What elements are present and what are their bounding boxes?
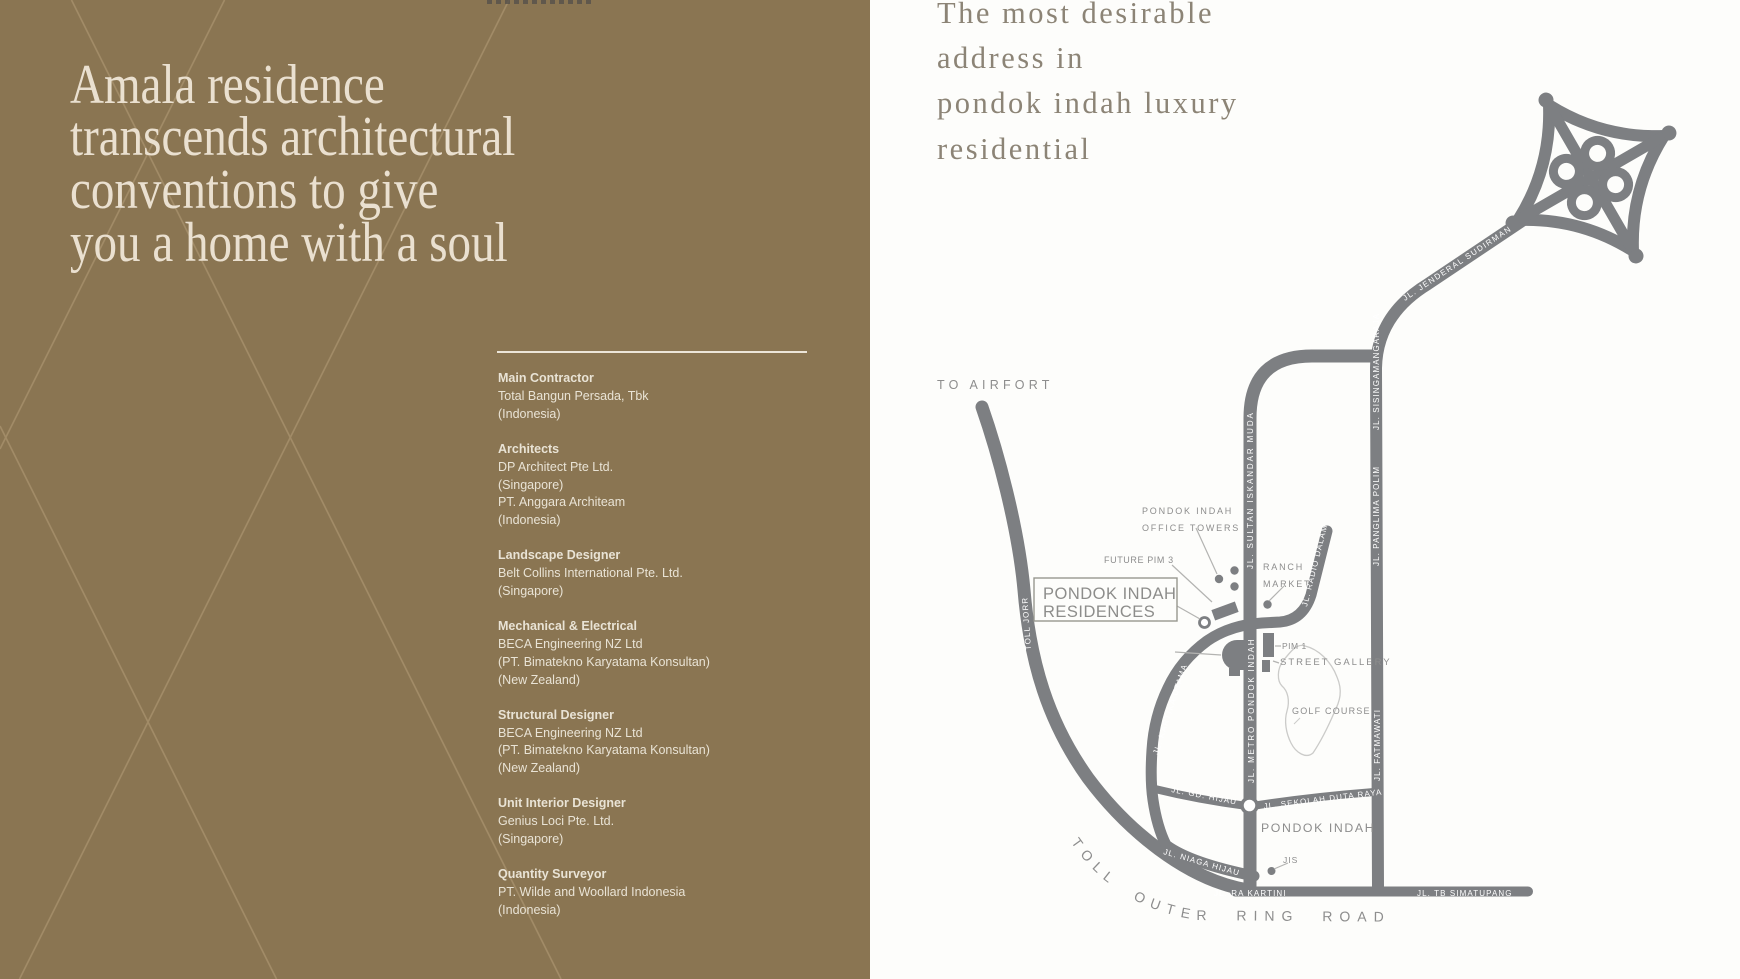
svg-text:JL. SEKOLAH DUTA RAYA: JL. SEKOLAH DUTA RAYA: [1263, 787, 1383, 811]
svg-text:RANCH: RANCH: [1263, 562, 1304, 572]
svg-text:FUTURE PIM 3: FUTURE PIM 3: [1104, 555, 1174, 565]
svg-text:PONDOK INDAH: PONDOK INDAH: [1142, 506, 1233, 516]
svg-text:JL. RA KARTINI: JL. RA KARTINI: [1214, 889, 1287, 898]
svg-text:JL. TB SIMATUPANG: JL. TB SIMATUPANG: [1417, 889, 1513, 898]
svg-text:TO AIRFORT: TO AIRFORT: [937, 378, 1054, 392]
svg-text:JL. SULTAN ISKANDAR MUDA: JL. SULTAN ISKANDAR MUDA: [1246, 411, 1255, 569]
svg-text:JL. SISINGAMANGARAJA: JL. SISINGAMANGARAJA: [1372, 313, 1381, 430]
svg-text:JL. FATMAWATI: JL. FATMAWATI: [1373, 709, 1382, 781]
svg-text:JL. JENDERAL SUDIRMAN: JL. JENDERAL SUDIRMAN: [1401, 224, 1513, 303]
svg-text:JL. METRO PONDOK INDAH: JL. METRO PONDOK INDAH: [1247, 638, 1256, 783]
svg-text:PONDOK INDAH: PONDOK INDAH: [1043, 585, 1176, 603]
svg-text:GOLF COURSE: GOLF COURSE: [1292, 706, 1371, 716]
svg-text:RESIDENCES: RESIDENCES: [1043, 603, 1155, 621]
svg-text:PONDOK INDAH: PONDOK INDAH: [1261, 821, 1375, 835]
svg-text:STREET GALLERY: STREET GALLERY: [1280, 657, 1392, 668]
svg-text:PIM 1: PIM 1: [1282, 641, 1307, 651]
svg-text:JIS: JIS: [1283, 855, 1298, 865]
svg-text:JL. PANGLIMA POLIM: JL. PANGLIMA POLIM: [1372, 466, 1381, 566]
svg-text:OFFICE TOWERS: OFFICE TOWERS: [1142, 523, 1240, 533]
